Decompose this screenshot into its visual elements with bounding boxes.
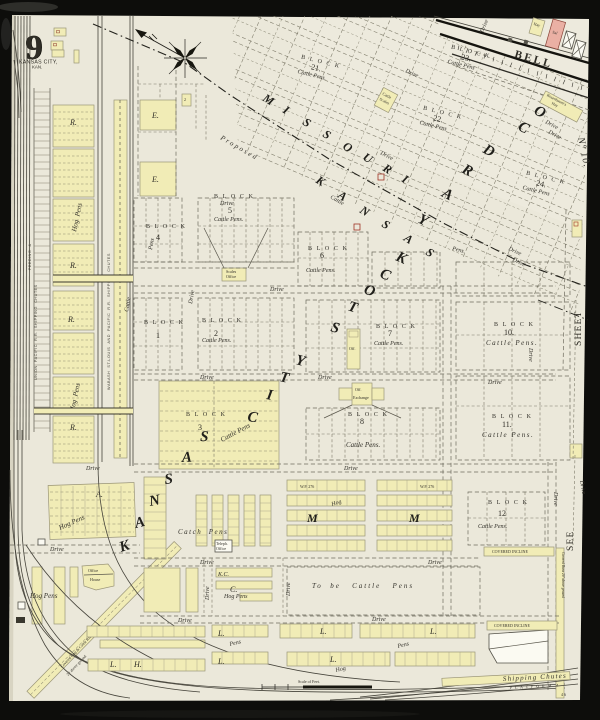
svg-text:B L O C K: B L O C K (348, 412, 389, 418)
svg-text:B L O C K: B L O C K (202, 318, 243, 324)
svg-text:Cattle Pens.: Cattle Pens. (374, 341, 403, 347)
svg-text:Scale of Feet.: Scale of Feet. (298, 679, 320, 684)
svg-text:B L O C K: B L O C K (492, 414, 533, 420)
svg-text:1: 1 (156, 331, 160, 340)
svg-text:B L O C K: B L O C K (214, 194, 255, 200)
svg-text:S: S (164, 471, 174, 488)
svg-text:R.: R. (67, 315, 75, 324)
svg-text:7: 7 (388, 329, 392, 338)
svg-text:10.: 10. (504, 328, 514, 337)
svg-text:Drive: Drive (343, 466, 358, 472)
svg-text:R.: R. (69, 261, 77, 270)
svg-text:Cattle Pens.: Cattle Pens. (202, 338, 231, 344)
svg-text:Drive: Drive (269, 287, 284, 293)
svg-text:B L O C K: B L O C K (144, 320, 185, 326)
svg-text:Cattle Pens.: Cattle Pens. (482, 431, 534, 439)
svg-text:Drive: Drive (487, 380, 502, 386)
svg-text:Cattle Pens.: Cattle Pens. (346, 441, 380, 449)
svg-text:Drive: Drive (199, 375, 214, 381)
svg-text:H.: H. (133, 660, 142, 669)
svg-text:2: 2 (184, 97, 186, 102)
svg-text:5: 5 (228, 206, 232, 215)
svg-text:Office: Office (226, 274, 236, 279)
svg-text:2: 2 (214, 329, 218, 338)
svg-text:Hog Pens: Hog Pens (223, 594, 248, 600)
svg-text:R.: R. (69, 118, 77, 127)
svg-text:L.: L. (429, 627, 436, 636)
svg-text:Covered Runs 20’ above ground: Covered Runs 20’ above ground (561, 552, 565, 598)
svg-text:E.: E. (151, 175, 159, 184)
svg-text:Exchange: Exchange (353, 395, 369, 400)
svg-text:Drive: Drive (371, 617, 386, 623)
svg-text:A: A (181, 450, 193, 466)
svg-text:WABASH ST.LOUIS AND PACIFIC: WABASH ST.LOUIS AND PACIFIC R.R. SHIPPIN… (107, 253, 111, 390)
svg-text:E.: E. (151, 111, 159, 120)
svg-text:House: House (90, 577, 100, 582)
svg-text:4 6: 4 6 (561, 692, 566, 697)
svg-text:Drive: Drive (317, 375, 332, 381)
svg-text:S: S (200, 429, 209, 445)
svg-text:KAN.: KAN. (32, 65, 42, 70)
svg-text:B L O C K: B L O C K (376, 324, 417, 330)
svg-text:Cattle Pens.: Cattle Pens. (306, 268, 335, 274)
svg-text:COVERED INCLINE: COVERED INCLINE (494, 623, 530, 628)
svg-text:R.: R. (69, 423, 77, 432)
svg-text:Cattle Pens.: Cattle Pens. (486, 339, 538, 347)
svg-text:4: 4 (156, 233, 160, 242)
svg-text:Drive: Drive (177, 618, 192, 624)
svg-text:L.: L. (109, 660, 116, 669)
svg-text:L.: L. (217, 657, 224, 666)
svg-text:L.: L. (319, 627, 326, 636)
svg-text:UNION PACIFIC R.R. SHIPPING: UNION PACIFIC R.R. SHIPPING CHUTES (34, 284, 38, 380)
svg-text:Drive: Drive (552, 491, 558, 506)
svg-text:Drive: Drive (205, 586, 211, 601)
svg-text:A.: A. (95, 490, 103, 499)
svg-text:Off.: Off. (349, 346, 355, 351)
svg-text:Hog Pens: Hog Pens (29, 592, 58, 600)
svg-text:11.: 11. (502, 420, 512, 429)
svg-text:M: M (306, 511, 318, 525)
svg-text:B L O C K: B L O C K (488, 500, 529, 506)
svg-text:COVERED INCLINE: COVERED INCLINE (492, 549, 528, 554)
svg-text:B L O C K: B L O C K (186, 412, 227, 418)
svg-text:8: 8 (360, 417, 364, 426)
svg-text:SEE: SEE (566, 531, 576, 552)
svg-text:K.C.: K.C. (217, 572, 229, 578)
svg-text:Drive: Drive (527, 347, 533, 362)
svg-text:L.: L. (217, 629, 224, 638)
svg-text:B L O C K: B L O C K (146, 224, 187, 230)
svg-text:L.: L. (329, 655, 336, 664)
svg-text:Office: Office (88, 568, 98, 573)
svg-text:Drive: Drive (49, 547, 64, 553)
svg-text:Drive: Drive (427, 560, 442, 566)
svg-text:M: M (408, 511, 420, 525)
svg-text:C.: C. (230, 585, 237, 594)
svg-text:Office: Office (216, 546, 226, 551)
svg-text:Off.: Off. (355, 387, 361, 392)
svg-text:Drive: Drive (286, 582, 292, 597)
svg-text:Cattle Pens.: Cattle Pens. (478, 524, 507, 530)
svg-text:12: 12 (498, 509, 506, 518)
svg-text:Cattle Pens.: Cattle Pens. (214, 217, 243, 223)
svg-text:To be Cattle Pens: To be Cattle Pens (312, 582, 414, 590)
svg-text:W.P. 276: W.P. 276 (300, 484, 314, 489)
svg-text:FEEDING &: FEEDING & (28, 243, 32, 270)
svg-text:B L O C K: B L O C K (494, 322, 535, 328)
svg-text:B L O C K: B L O C K (308, 246, 349, 252)
svg-text:6: 6 (320, 251, 324, 260)
svg-text:Catch Pens: Catch Pens (178, 528, 228, 536)
svg-text:W.P. 276: W.P. 276 (420, 484, 434, 489)
